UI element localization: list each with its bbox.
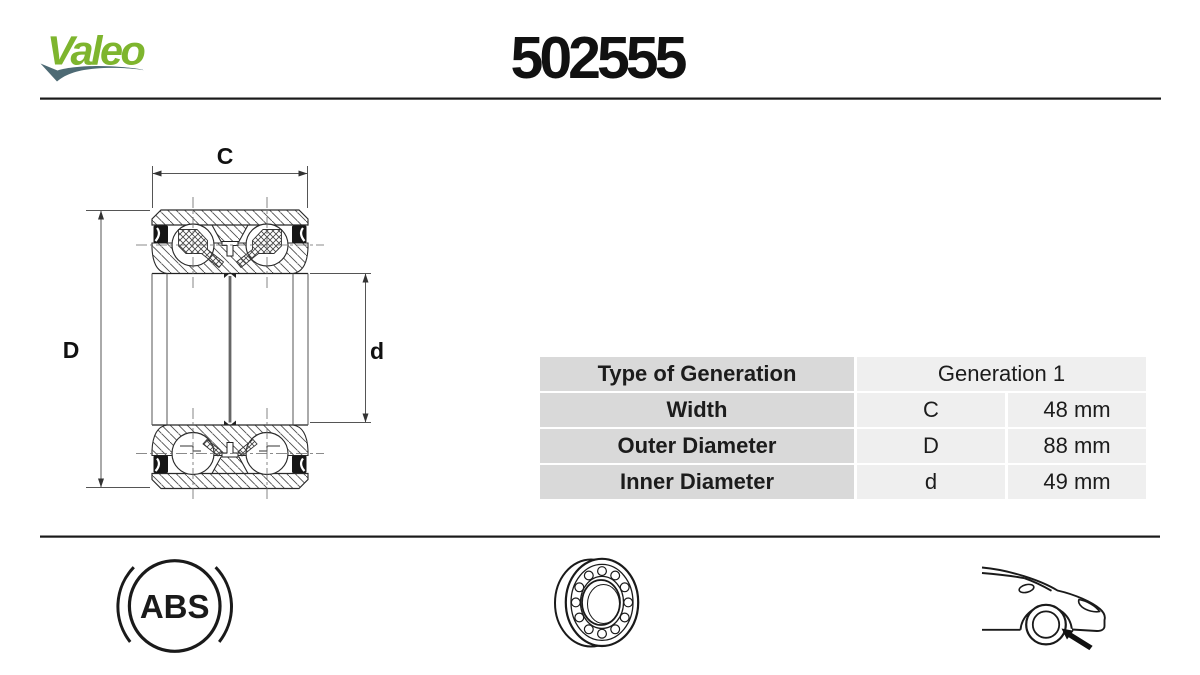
svg-text:D: D [63, 337, 80, 363]
svg-text:ABS: ABS [140, 588, 210, 625]
svg-text:d: d [370, 338, 384, 364]
svg-text:C: C [217, 143, 234, 169]
